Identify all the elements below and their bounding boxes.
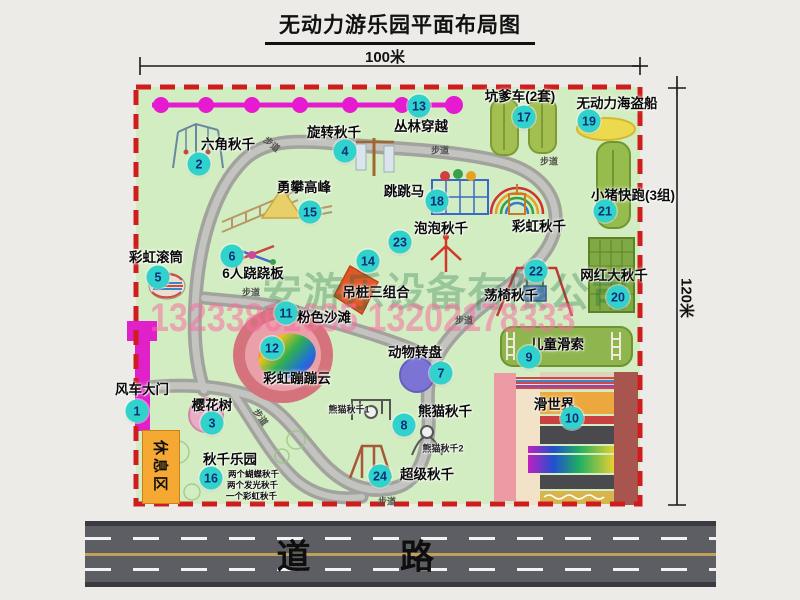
label-chair-swing: 荡椅秋千: [484, 284, 538, 304]
path-label-2: 步道: [431, 144, 449, 157]
road-label: 道 路: [277, 530, 474, 579]
marker-1: 1: [126, 400, 149, 423]
page-title: 无动力游乐园平面布局图: [265, 9, 535, 45]
label-hanging-post-combo: 吊桩三组合: [342, 281, 410, 301]
marker-8: 8: [393, 414, 416, 437]
road: 道 路: [85, 521, 716, 587]
label-rainbow-bounce-cloud: 彩虹蹦蹦云: [263, 367, 331, 387]
label-windmill-gate: 风车大门: [115, 378, 169, 398]
marker-18: 18: [426, 190, 449, 213]
marker-19: 19: [578, 110, 601, 133]
swing-park-note-3: 一个彩虹秋千: [226, 490, 277, 502]
label-climbing-peak: 勇攀高峰: [277, 176, 331, 196]
marker-24: 24: [369, 465, 392, 488]
label-kengdie-car: 坑爹车(2套): [485, 85, 556, 105]
marker-21: 21: [594, 200, 617, 223]
label-panda-swing-2: 熊猫秋千2: [422, 442, 463, 455]
label-panda-swing: 熊猫秋千: [418, 400, 472, 420]
path-label-6: 步道: [378, 495, 396, 508]
label-jungle-crossing: 丛林穿越: [394, 115, 448, 135]
label-jumping-horse: 跳跳马: [384, 180, 425, 200]
label-bubble-swing: 泡泡秋千: [414, 217, 468, 237]
marker-2: 2: [188, 153, 211, 176]
label-rotating-swing: 旋转秋千: [307, 121, 361, 141]
marker-11: 11: [275, 302, 298, 325]
label-panda-swing-1: 熊猫秋千1: [328, 403, 369, 416]
rainbow-swing-icon: [491, 184, 543, 214]
label-rainbow-swing: 彩虹秋千: [512, 215, 566, 235]
label-pink-beach: 粉色沙滩: [297, 306, 351, 326]
park-layout-plan: 无动力游乐园平面布局图 100米 120米 休息区 安游乐设备有限公司 1323…: [0, 0, 800, 600]
marker-14: 14: [357, 250, 380, 273]
label-animal-carousel: 动物转盘: [388, 341, 442, 361]
dimension-height-label: 120米: [677, 278, 698, 318]
marker-12: 12: [261, 337, 284, 360]
rest-area: 休息区: [142, 430, 180, 504]
label-big-net-swing: 网红大秋千: [580, 264, 648, 284]
label-swing-park: 秋千乐园: [203, 448, 257, 468]
marker-16: 16: [200, 467, 223, 490]
marker-3: 3: [201, 412, 224, 435]
label-super-swing: 超级秋千: [400, 463, 454, 483]
marker-23: 23: [389, 231, 412, 254]
marker-22: 22: [525, 260, 548, 283]
marker-20: 20: [607, 286, 630, 309]
label-rainbow-roller: 彩虹滚筒: [129, 246, 183, 266]
marker-6: 6: [221, 245, 244, 268]
label-hexagon-swing: 六角秋千: [201, 133, 255, 153]
marker-4: 4: [334, 140, 357, 163]
path-label-4: 步道: [242, 286, 260, 299]
marker-13: 13: [408, 95, 431, 118]
path-label-5: 步道: [455, 314, 473, 327]
marker-9: 9: [518, 346, 541, 369]
marker-7: 7: [430, 362, 453, 385]
slide-world-shapes: [494, 372, 638, 505]
marker-5: 5: [147, 266, 170, 289]
marker-15: 15: [299, 201, 322, 224]
dimension-width-label: 100米: [365, 46, 405, 67]
marker-10: 10: [561, 407, 584, 430]
path-label-3: 步道: [540, 155, 558, 168]
rest-area-label: 休息区: [151, 440, 172, 494]
marker-17: 17: [513, 106, 536, 129]
